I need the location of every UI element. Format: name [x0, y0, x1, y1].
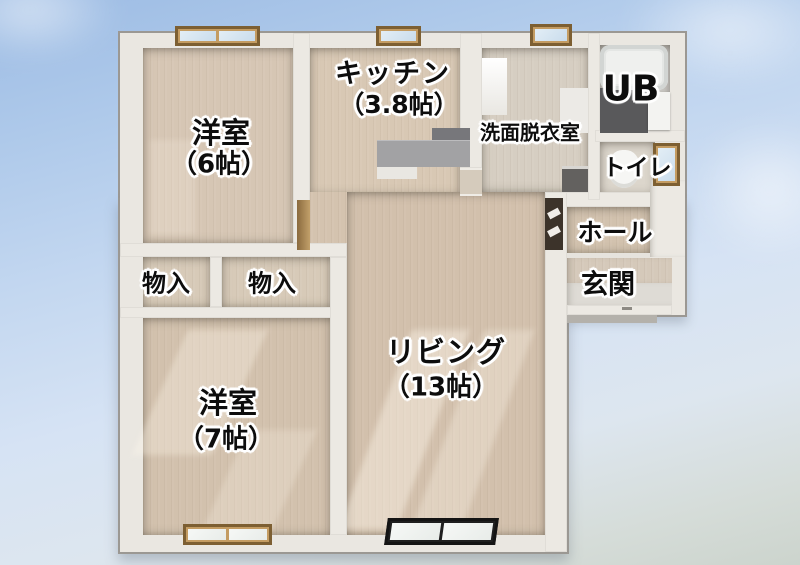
- kitchen-counter-front: [377, 167, 417, 179]
- wall: [210, 257, 222, 307]
- window-bedroom7: [183, 524, 272, 545]
- window-pane: [180, 31, 216, 41]
- window-pane: [219, 31, 255, 41]
- room-label-toilet: トイレ: [603, 148, 672, 182]
- room-size-living: （13帖）: [384, 367, 498, 404]
- window-living: [384, 518, 499, 545]
- window-pane: [188, 529, 226, 540]
- bedroom6-door: [297, 200, 310, 250]
- wall: [650, 180, 685, 257]
- wall: [120, 307, 347, 318]
- room-size-bedroom7: （7帖）: [178, 419, 274, 456]
- entrance-door: [567, 305, 672, 315]
- room-label-washroom: 洗面脱衣室: [480, 117, 580, 146]
- window-pane: [390, 523, 441, 540]
- hall-door-glass: [547, 226, 561, 238]
- room-label-hall: ホール: [577, 213, 652, 249]
- window-pane: [535, 29, 567, 41]
- window-pane: [229, 529, 267, 540]
- doorway-washroom: [460, 168, 482, 196]
- entrance-step: [567, 315, 657, 323]
- room-label-living: リビング: [386, 329, 506, 371]
- room-size-bedroom6: （6帖）: [171, 144, 267, 181]
- room-size-kitchen: （3.8帖）: [339, 85, 458, 121]
- room-label-storage-left: 物入: [142, 264, 190, 299]
- wall: [330, 257, 347, 535]
- window-pane: [381, 31, 416, 41]
- window-washroom: [530, 24, 572, 46]
- floor-plan-image: 洋室 （6帖） キッチン （3.8帖） 洗面脱衣室 UB トイレ ホール 玄関 …: [0, 0, 800, 565]
- entrance-door-handle: [622, 307, 632, 310]
- room-label-unit-bath: UB: [603, 69, 660, 110]
- room-label-bedroom7: 洋室: [199, 380, 257, 422]
- washing-machine: [562, 166, 588, 192]
- kitchen-counter: [377, 140, 470, 167]
- window-pane: [442, 523, 493, 540]
- window-bedroom6: [175, 26, 260, 46]
- wall: [588, 33, 600, 200]
- room-living-floor: [310, 192, 347, 243]
- hall-door: [545, 198, 563, 250]
- wall: [120, 243, 347, 257]
- room-label-entrance: 玄関: [581, 263, 635, 302]
- room-label-storage-right: 物入: [248, 264, 296, 299]
- hall-door-glass: [547, 208, 561, 220]
- washroom-vanity: [482, 58, 507, 115]
- window-kitchen: [376, 26, 421, 46]
